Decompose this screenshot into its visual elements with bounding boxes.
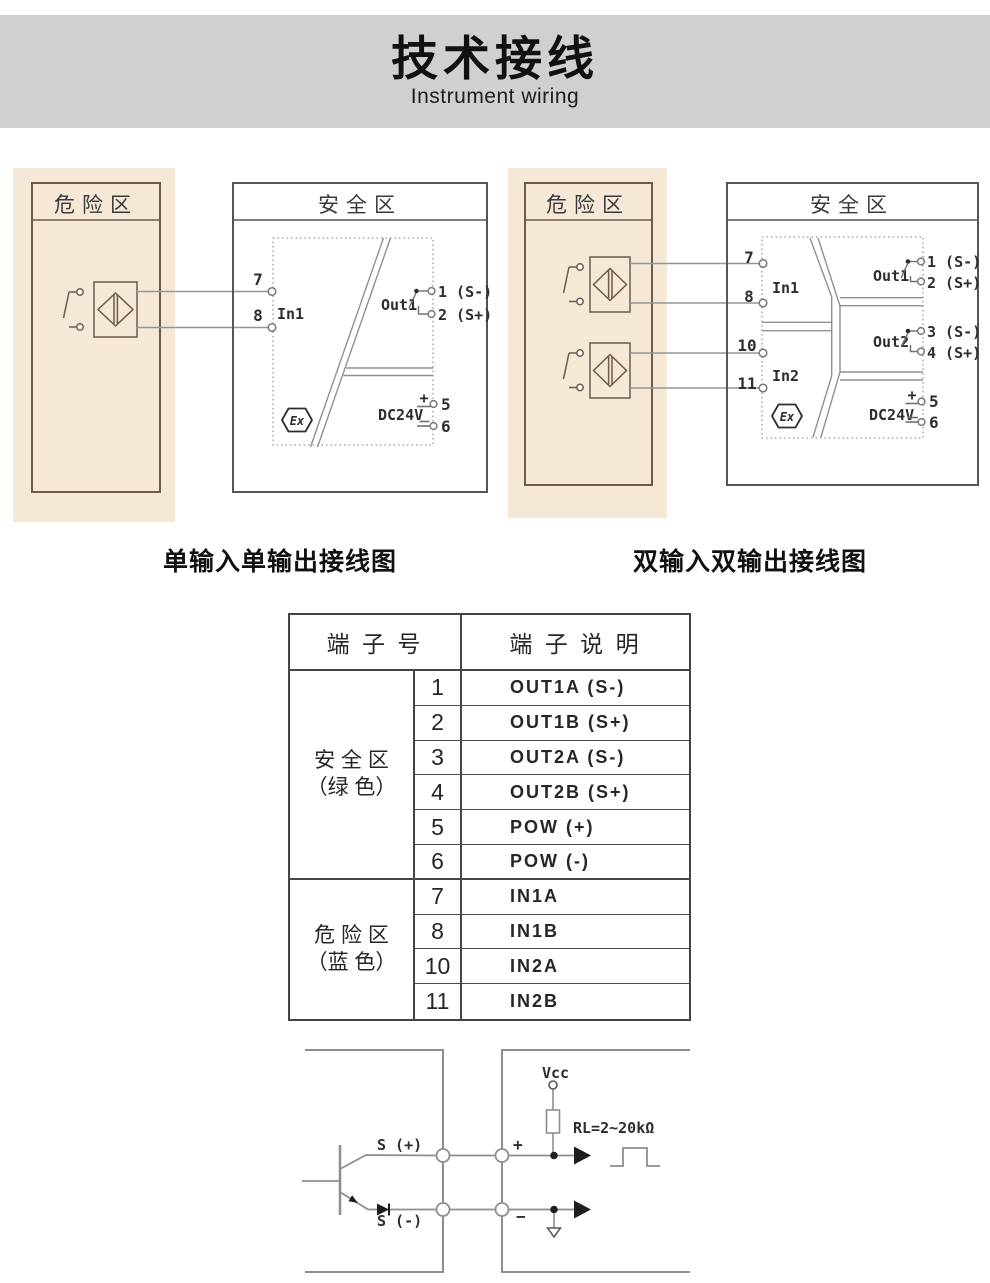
in1-label: In1 <box>772 279 799 297</box>
vcc-terminal-circle <box>549 1081 557 1089</box>
hazard-zone-label: 危险区 <box>546 194 630 217</box>
table-row-desc: OUT2B (S+) <box>462 775 689 810</box>
table-row-desc: OUT1A (S-) <box>462 671 689 706</box>
terminal-5-circle <box>430 401 437 408</box>
vcc-label: Vcc <box>542 1064 569 1082</box>
table-row-no: 5 <box>415 810 462 845</box>
in2-label: In2 <box>772 367 799 385</box>
header-band: 技术接线 Instrument wiring <box>0 15 990 128</box>
terminal-8-label: 8 <box>744 287 754 306</box>
page-title: 技术接线 <box>391 34 599 83</box>
terminal-8-label: 8 <box>253 306 263 325</box>
s-plus-label: S (+) <box>377 1136 422 1154</box>
signal-arrow-icon <box>574 1147 591 1165</box>
emitter-arrow-icon <box>349 1195 359 1203</box>
table-row-no: 4 <box>415 775 462 810</box>
input-terminals <box>759 260 767 392</box>
plus-sign: + <box>513 1135 523 1154</box>
single-channel-wiring-diagram: 危险区 安全区 <box>0 160 500 535</box>
out1-s-plus-label: 2 (S+) <box>927 274 981 292</box>
table-row-desc: POW (-) <box>462 845 689 880</box>
table-row-desc: IN1A <box>462 880 689 915</box>
terminal-5-label: 5 <box>929 392 939 411</box>
terminal-description-column-header: 端 子 说 明 <box>462 615 689 669</box>
table-row-no: 11 <box>415 984 462 1019</box>
link-wires <box>450 1156 496 1210</box>
output-circuit-schematic: S (+) S (-) + − Vcc RL=2~20kΩ <box>280 1040 720 1283</box>
user-side-box <box>502 1050 690 1272</box>
ex-mark-icon: Ex <box>282 409 312 432</box>
zone-label-hazard: 危 险 区 （蓝 色） <box>290 880 415 1019</box>
terminal-7-label: 7 <box>744 248 754 267</box>
terminal-6-label: 6 <box>441 417 451 436</box>
s-minus-label: S (-) <box>377 1212 422 1230</box>
table-row-desc: POW (+) <box>462 810 689 845</box>
page-subtitle: Instrument wiring <box>411 85 579 109</box>
terminal-10-label: 10 <box>737 336 756 355</box>
safe-zone-box <box>233 183 487 492</box>
dual-channel-wiring-diagram: 危险区 <box>500 160 990 535</box>
transistor-icon <box>302 1145 437 1215</box>
terminal-6-label: 6 <box>929 413 939 432</box>
table-row-no: 10 <box>415 949 462 984</box>
safe-zone-label: 安全区 <box>810 194 894 217</box>
out1-s-plus-label: 2 (S+) <box>438 306 492 324</box>
terminal-circles <box>437 1149 509 1216</box>
hazard-zone-label: 危险区 <box>54 194 138 217</box>
table-row-no: 1 <box>415 671 462 706</box>
in1-label: In1 <box>277 305 304 323</box>
dc24v-label: DC24V <box>378 406 423 424</box>
plus-sign: + <box>907 386 916 404</box>
out2-s-minus-label: 3 (S-) <box>927 323 981 341</box>
hazard-zone-highlight <box>13 168 175 522</box>
table-row-no: 7 <box>415 880 462 915</box>
isolator-side-box <box>305 1050 443 1272</box>
terminal-table-header: 端 子 号 端 子 说 明 <box>290 615 689 671</box>
table-row-desc: OUT1B (S+) <box>462 706 689 741</box>
svg-text:Ex: Ex <box>780 410 795 424</box>
table-row-no: 6 <box>415 845 462 880</box>
junction-dot <box>550 1206 558 1214</box>
page: 技术接线 Instrument wiring 危险区 <box>0 0 990 1283</box>
out1-s-minus-label: 1 (S-) <box>438 283 492 301</box>
terminal-number-column-header: 端 子 号 <box>290 615 462 669</box>
terminal-6-circle <box>918 419 925 426</box>
terminal-table-body: 安 全 区 （绿 色） 1 OUT1A (S-) 2 OUT1B (S+) 3 … <box>290 671 689 1019</box>
table-row-no: 8 <box>415 915 462 950</box>
safe-zone-label: 安全区 <box>318 194 402 217</box>
ex-mark-icon: Ex <box>772 405 802 428</box>
terminal-11-label: 11 <box>737 374 756 393</box>
out1-label: Out1 <box>381 296 417 314</box>
table-row-desc: IN2A <box>462 949 689 984</box>
single-diagram-caption: 单输入单输出接线图 <box>100 542 460 578</box>
out1-s-minus-label: 1 (S-) <box>927 253 981 271</box>
pulse-waveform-icon <box>610 1148 660 1166</box>
zone-label-safe: 安 全 区 （绿 色） <box>290 671 415 880</box>
table-row-no: 2 <box>415 706 462 741</box>
rl-label: RL=2~20kΩ <box>573 1119 654 1137</box>
input-terminals <box>268 288 276 332</box>
ground-icon <box>548 1228 561 1237</box>
terminal-7-label: 7 <box>253 270 263 289</box>
signal-arrow-icon <box>574 1201 591 1219</box>
plus-sign: + <box>419 389 428 407</box>
out1-label: Out1 <box>873 267 909 285</box>
table-row-desc: IN1B <box>462 915 689 950</box>
svg-text:Ex: Ex <box>290 414 305 428</box>
dual-diagram-caption: 双输入双输出接线图 <box>570 542 930 578</box>
table-row-no: 3 <box>415 741 462 776</box>
out2-s-plus-label: 4 (S+) <box>927 344 981 362</box>
terminal-table: 端 子 号 端 子 说 明 安 全 区 （绿 色） 1 OUT1A (S-) 2… <box>288 613 691 1021</box>
table-row-desc: OUT2A (S-) <box>462 741 689 776</box>
table-row-desc: IN2B <box>462 984 689 1019</box>
terminal-5-circle <box>918 398 925 405</box>
terminal-6-circle <box>430 423 437 430</box>
junction-dot <box>550 1152 558 1160</box>
terminal-5-label: 5 <box>441 395 451 414</box>
